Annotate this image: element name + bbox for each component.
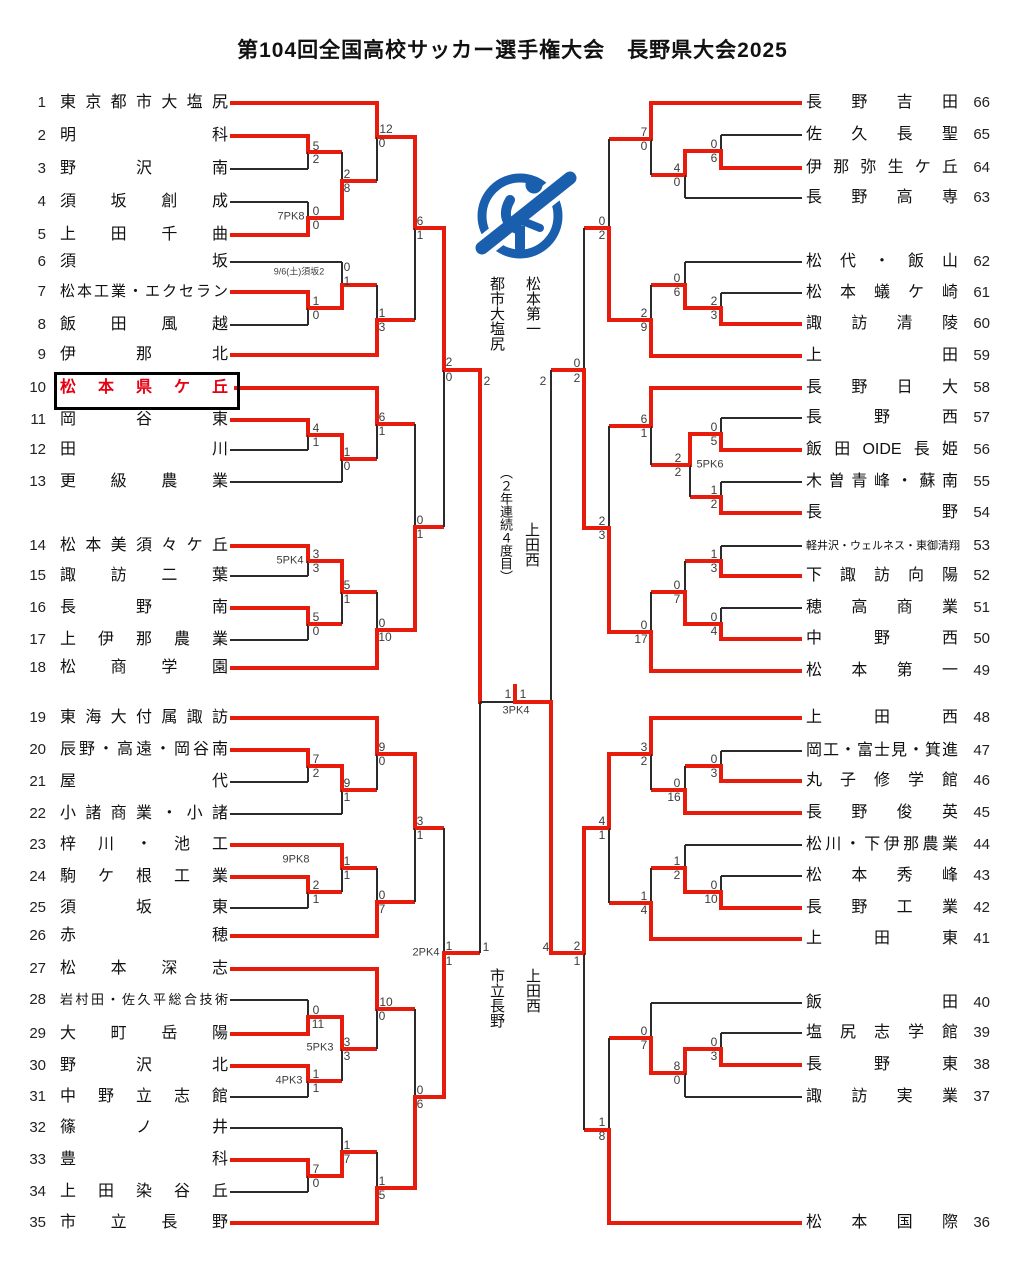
team-row: 45長野俊英 [0,802,1025,824]
page-title: 第104回全国高校サッカー選手権大会 長野県大会2025 [0,34,1025,64]
team-number: 37 [962,1089,990,1104]
pk-score-label: 7PK8 [278,212,305,223]
team-number: 62 [962,254,990,269]
team-row: 49松本第一 [0,660,1025,682]
team-number: 52 [962,568,990,583]
team-name: 岡工・富士見・箕進 [806,742,958,760]
team-row: 47岡工・富士見・箕進 [0,740,1025,762]
team-row: 43松本秀峰 [0,865,1025,887]
team-number: 65 [962,127,990,142]
team-row: 60諏訪清陵 [0,313,1025,335]
team-number: 36 [962,1215,990,1230]
team-number: 27 [18,961,46,976]
team-name: 松代・飯山 [806,253,958,271]
team-name: 松本国際 [806,1214,958,1232]
team-name: 下諏訪向陽 [806,567,958,585]
team-name: 松本秀峰 [806,867,958,885]
winner-path-line [651,463,690,467]
team-number: 55 [962,474,990,489]
team-number: 47 [962,743,990,758]
bracket-line [608,139,609,228]
team-row: 59上田 [0,345,1025,367]
team-number: 46 [962,773,990,788]
team-row: 36松本国際 [0,1212,1025,1234]
team-name: 諏訪実業 [806,1088,958,1106]
tournament-bracket-page: 第104回全国高校サッカー選手権大会 長野県大会2025 52007PK8281… [0,0,1025,1271]
team-row: 56飯田OIDE長姫 [0,439,1025,461]
team-name: 豊科 [60,1151,228,1169]
team-number: 44 [962,837,990,852]
team-row: 44松川・下伊那農業 [0,834,1025,856]
team-row: 38長野東 [0,1054,1025,1076]
bracket-line [480,701,515,702]
team-number: 40 [962,995,990,1010]
team-name: 長野高専 [806,189,958,207]
team-number: 61 [962,285,990,300]
team-name: 長野東 [806,1056,958,1074]
team-number: 39 [962,1025,990,1040]
pk-score-label: 4PK3 [276,1076,303,1087]
score-label: 1 [520,688,527,700]
team-row: 46丸子修学館 [0,770,1025,792]
team-name: 穂高商業 [806,599,958,617]
team-name: 長野吉田 [806,94,958,112]
team-name: 丸子修学館 [806,772,958,790]
team-name: 伊那弥生ケ丘 [806,159,958,177]
team-number: 5 [18,227,46,242]
highlighted-team-box [54,372,240,410]
team-row: 61松本蟻ケ崎 [0,282,1025,304]
team-number: 51 [962,600,990,615]
team-number: 56 [962,442,990,457]
team-name: 松川・下伊那農業 [806,836,958,854]
team-name: 上田千曲 [60,226,228,244]
team-row: 40飯田 [0,992,1025,1014]
team-row: 34上田染谷丘 [0,1181,1025,1203]
pk-score-label: 5PK6 [697,460,724,471]
team-number: 33 [18,1152,46,1167]
team-row: 42長野工業 [0,897,1025,919]
team-name: 佐久長聖 [806,126,958,144]
team-number: 32 [18,1120,46,1135]
team-number: 41 [962,931,990,946]
team-number: 66 [962,95,990,110]
team-name: 上田西 [806,709,958,727]
team-name: 上田染谷丘 [60,1183,228,1201]
team-name: 長野日大 [806,379,958,397]
team-number: 64 [962,160,990,175]
team-number: 45 [962,805,990,820]
team-number: 38 [962,1057,990,1072]
pk-score-label: 9PK8 [283,855,310,866]
semifinalist-bottom-left: 市立長野 [486,968,507,1064]
champion-note: （２年連続４度目） [496,466,515,616]
team-name: 長野工業 [806,899,958,917]
team-row: 41上田東 [0,928,1025,950]
team-row: 50中野西 [0,628,1025,650]
team-number: 48 [962,710,990,725]
logo-icon [466,164,580,268]
team-row: 48上田西 [0,707,1025,729]
team-name: 松本第一 [806,662,958,680]
team-name: 上田 [806,347,958,365]
team-number: 53 [962,538,990,553]
winner-path-line [513,684,517,704]
team-name: 飯田 [806,994,958,1012]
team-number: 60 [962,316,990,331]
team-row: 33豊科 [0,1149,1025,1171]
team-row: 65佐久長聖 [0,124,1025,146]
team-row: 66長野吉田 [0,92,1025,114]
team-number: 59 [962,348,990,363]
team-number: 57 [962,410,990,425]
team-number: 54 [962,505,990,520]
team-row: 32篠ノ井 [0,1117,1025,1139]
team-number: 42 [962,900,990,915]
team-name: 塩尻志学館 [806,1024,958,1042]
semifinalist-top-left: 都市大塩尻 [486,276,507,372]
team-row: 37諏訪実業 [0,1086,1025,1108]
champion-name: 上田西 [521,522,542,600]
team-row: 57長野西 [0,407,1025,429]
team-name: 諏訪清陵 [806,315,958,333]
score-label: 1 [505,688,512,700]
team-number: 34 [18,1184,46,1199]
team-row: 27松本深志 [0,958,1025,980]
team-name: 木曽青峰・蘇南 [806,473,958,491]
team-name: 上田東 [806,930,958,948]
winner-path-line [607,1128,611,1225]
team-row: 39塩尻志学館 [0,1022,1025,1044]
team-number: 50 [962,631,990,646]
soccer-association-logo [466,164,580,268]
team-name: 長野俊英 [806,804,958,822]
team-number: 58 [962,380,990,395]
team-name: 中野西 [806,630,958,648]
team-number: 63 [962,190,990,205]
team-name: 松本蟻ケ崎 [806,284,958,302]
team-name: 松本深志 [60,960,228,978]
semifinalist-top-right: 松本第一 [522,276,543,372]
semifinalist-bottom-right: 上田西 [522,968,543,1064]
team-number: 49 [962,663,990,678]
team-name: 長野 [806,504,958,522]
team-number: 43 [962,868,990,883]
team-name: 軽井沢・ウェルネス・東御清翔 [806,540,958,552]
team-name: 飯田OIDE長姫 [806,441,958,459]
team-name: 篠ノ井 [60,1119,228,1137]
team-name: 長野西 [806,409,958,427]
